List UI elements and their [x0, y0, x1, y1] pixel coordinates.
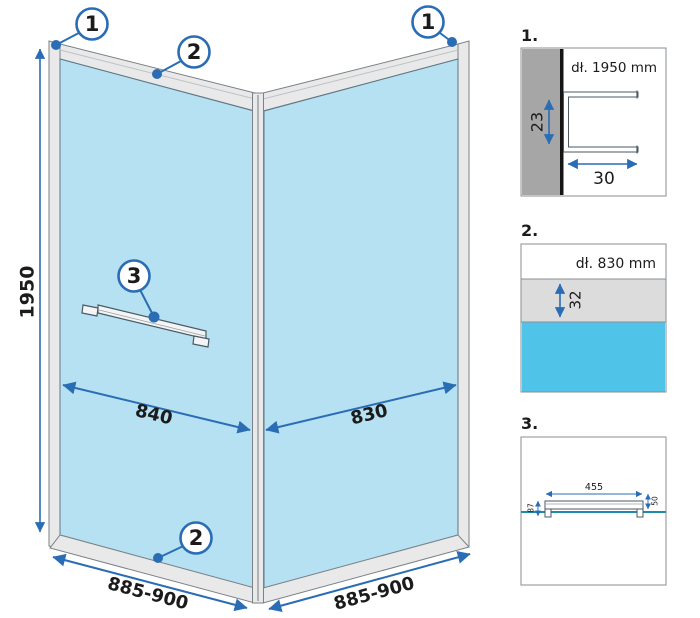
- callout-dot: [153, 553, 163, 563]
- detail-3-right-height-label: 50: [651, 496, 660, 506]
- callout-dot: [152, 69, 162, 79]
- detail-1-label: 1.: [521, 26, 538, 45]
- drawing-canvas: 1950 840 830 885-900 885-900 1 2 1: [0, 0, 700, 618]
- callout-dot: [149, 312, 160, 323]
- callout-1-top-left: 1: [51, 9, 108, 51]
- dim-height-label: 1950: [17, 266, 39, 319]
- detail-3-left-height-label: 87: [527, 503, 536, 513]
- detail-3-rail: [545, 501, 643, 509]
- detail-2-profile-band: [521, 279, 666, 322]
- detail-2-top-rail: 2. dł. 830 mm 32: [521, 221, 666, 392]
- detail-3-leg-left: [545, 509, 551, 517]
- callout-2-top-rail: 2: [152, 37, 210, 80]
- detail-2-length-label: dł. 830 mm: [576, 256, 656, 272]
- callout-number: 3: [127, 264, 142, 288]
- callout-dot: [447, 37, 457, 47]
- detail-2-glass-band: [522, 323, 665, 392]
- detail-1-length-label: dł. 1950 mm: [571, 60, 657, 76]
- detail-1-width-label: 30: [593, 169, 615, 189]
- detail-3-shelf: 3. 455 87 50: [521, 414, 666, 585]
- main-enclosure-view: [49, 41, 469, 603]
- shower-enclosure-technical-drawing: 1950 840 830 885-900 885-900 1 2 1: [0, 0, 700, 618]
- detail-2-height-label: 32: [566, 290, 584, 309]
- glass-panel-right: [264, 59, 458, 588]
- callout-number: 1: [421, 10, 436, 34]
- detail-3-width-label: 455: [585, 482, 603, 493]
- wall-profile-right: [458, 41, 469, 549]
- callout-number: 2: [189, 526, 204, 550]
- callout-1-top-right: 1: [413, 7, 458, 48]
- detail-2-label: 2.: [521, 221, 538, 240]
- callout-dot: [51, 40, 61, 50]
- callout-number: 1: [85, 12, 100, 36]
- detail-1-depth-label: 23: [528, 112, 547, 132]
- dimension-height: 1950: [17, 49, 40, 532]
- callout-number: 2: [187, 40, 202, 64]
- detail-3-leg-right: [637, 509, 643, 517]
- wall-profile-left: [49, 41, 60, 549]
- detail-3-label: 3.: [521, 414, 538, 433]
- detail-1-wall-profile: 1. 23 30 dł. 1950 mm: [521, 26, 666, 196]
- detail-1-glass-line: [560, 49, 564, 195]
